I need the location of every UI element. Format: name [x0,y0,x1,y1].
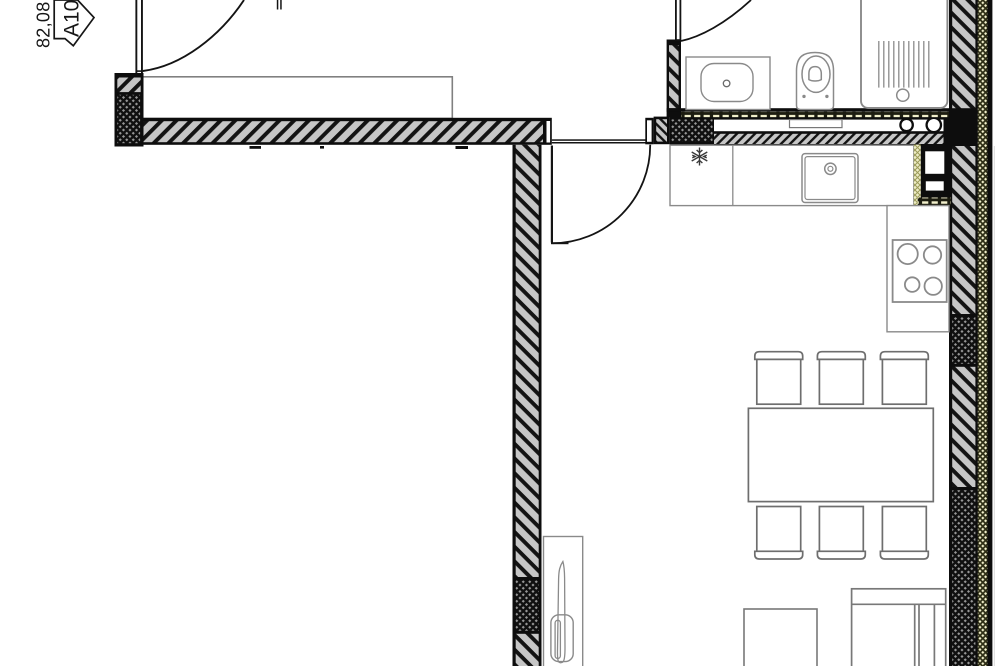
svg-text:82,08: 82,08 [34,1,54,48]
svg-text:A10: A10 [61,0,84,37]
